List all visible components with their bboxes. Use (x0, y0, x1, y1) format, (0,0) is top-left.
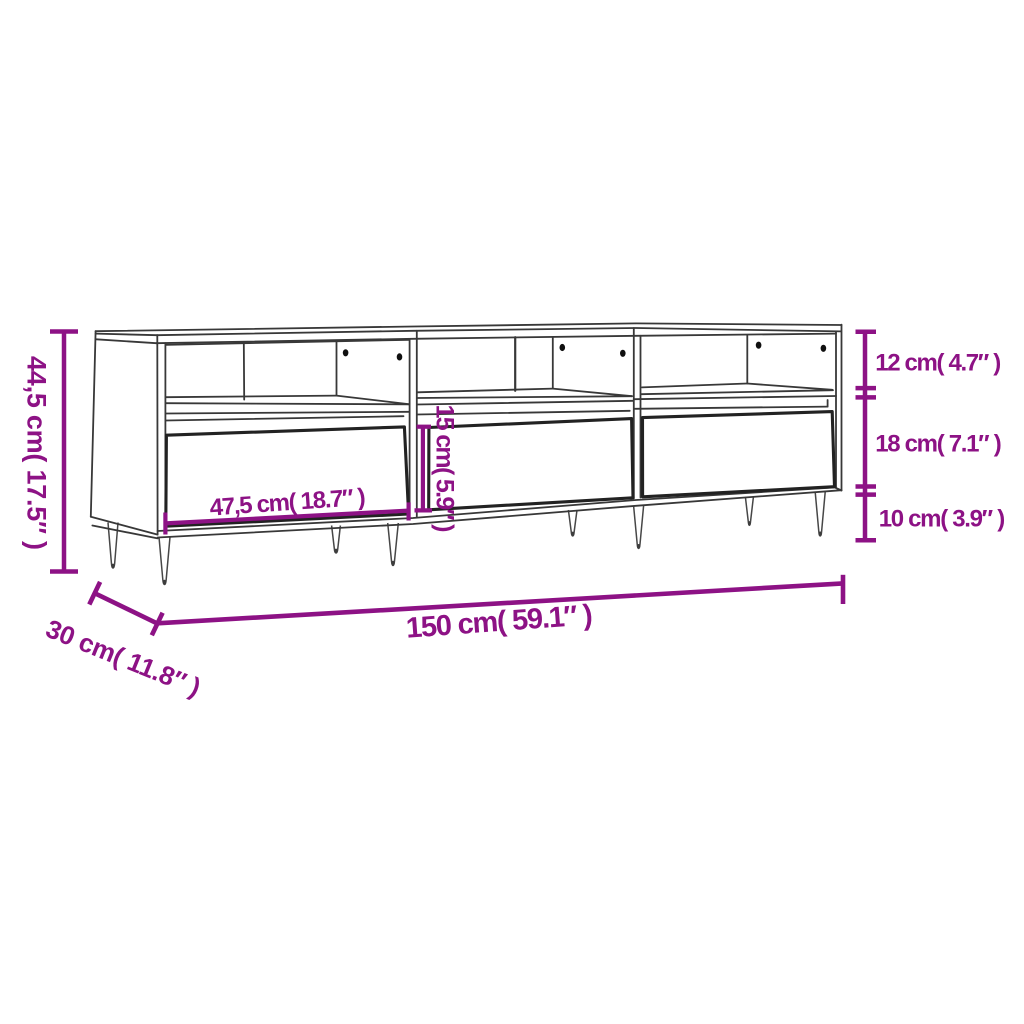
svg-text:10 cm( 3.9″ ): 10 cm( 3.9″ ) (879, 505, 1006, 532)
svg-text:44,5 cm( 17.5″ ): 44,5 cm( 17.5″ ) (22, 356, 52, 550)
svg-text:15 cm( 5.9″ ): 15 cm( 5.9″ ) (431, 405, 459, 533)
svg-text:18 cm( 7.1″ ): 18 cm( 7.1″ ) (875, 431, 1002, 458)
svg-text:12 cm( 4.7″ ): 12 cm( 4.7″ ) (875, 350, 1001, 377)
